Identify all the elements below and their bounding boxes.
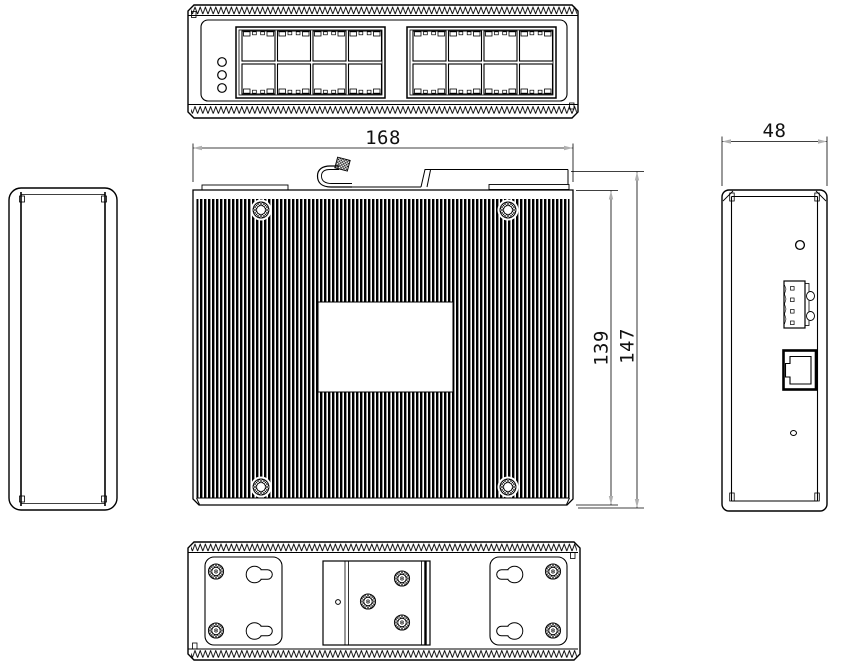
corner-screw [251,200,272,221]
dim-arrow [609,191,613,200]
rj45-port [484,64,517,94]
dim-depth-label: 48 [763,120,787,142]
plate-screw [208,623,223,638]
dim-arrow [722,139,731,143]
left-outline [9,188,117,510]
rj45-port [484,31,517,61]
bottom-view [188,542,580,660]
dim-arrow [609,496,613,505]
keyhole-slot [497,566,523,583]
dim-arrow [635,499,639,508]
port-group-1 [236,27,385,98]
rj45-port [349,31,382,61]
dimension-width: 168 [193,127,573,182]
technical-drawing: 168 48 139 147 [0,0,841,664]
right-side-view [722,190,827,511]
rj45-port [278,31,311,61]
bottom-outline [188,542,580,660]
dim-overall-height-label: 147 [617,328,639,364]
bracket-hole [336,600,341,605]
keyhole-slot [246,566,272,583]
rj45-port [520,31,553,61]
rj45-port [242,64,275,94]
rj45-port [520,64,553,94]
corner-screw [498,200,519,221]
dim-arrow [818,139,827,143]
small-hole [791,431,797,436]
left-inner-walls [21,192,105,506]
mounting-hole [796,241,805,250]
rj45-port [278,64,311,94]
power-terminal-block [784,281,815,328]
rj45-port [349,64,382,94]
plate-screw [208,564,223,579]
left-side-view [9,188,117,510]
led-indicators [218,58,227,93]
plate-screw [545,623,560,638]
rj45-port [449,31,482,61]
bracket-screw [360,594,375,609]
led [218,58,227,67]
rj45-port [242,31,275,61]
dim-arrow [635,172,639,181]
top-flange-right [489,185,569,190]
right-inner-walls [730,193,820,501]
led [218,84,227,93]
din-rail-clip [318,157,569,187]
rj45-port [413,31,446,61]
plate-screw [545,564,560,579]
dimension-inner-height: 139 [576,191,618,506]
bottom-top-fin-band [191,544,577,552]
dim-arrow [193,146,202,150]
dim-inner-height-label: 139 [591,330,613,366]
keyhole-slot [497,623,523,640]
corner-screw [251,477,272,498]
front-top-fin-band [191,7,577,15]
left-corner-tabs [20,196,107,502]
fin-base-edge [197,498,570,505]
dim-arrow [564,146,573,150]
corner-screw [498,477,519,498]
front-bottom-fin-band [191,106,577,114]
rj45-port [313,31,346,61]
rj45-port [413,64,446,94]
keyhole-slot [246,623,272,640]
front-view [188,5,578,118]
bottom-bottom-fin-band [191,650,577,658]
dimension-depth: 48 [722,120,827,186]
top-flange-left [202,185,288,190]
port-group-2 [407,27,556,98]
console-port [784,351,817,390]
bracket-screw [394,615,409,630]
rj45-port [313,64,346,94]
top-view [193,157,573,505]
mounting-plate-left [205,557,282,645]
dim-width-label: 168 [365,127,401,149]
led [218,71,227,80]
rj45-port [449,64,482,94]
label-area [318,302,453,392]
din-rail-bracket [323,561,430,645]
mounting-plate-right [490,557,567,645]
bracket-screw [394,571,409,586]
